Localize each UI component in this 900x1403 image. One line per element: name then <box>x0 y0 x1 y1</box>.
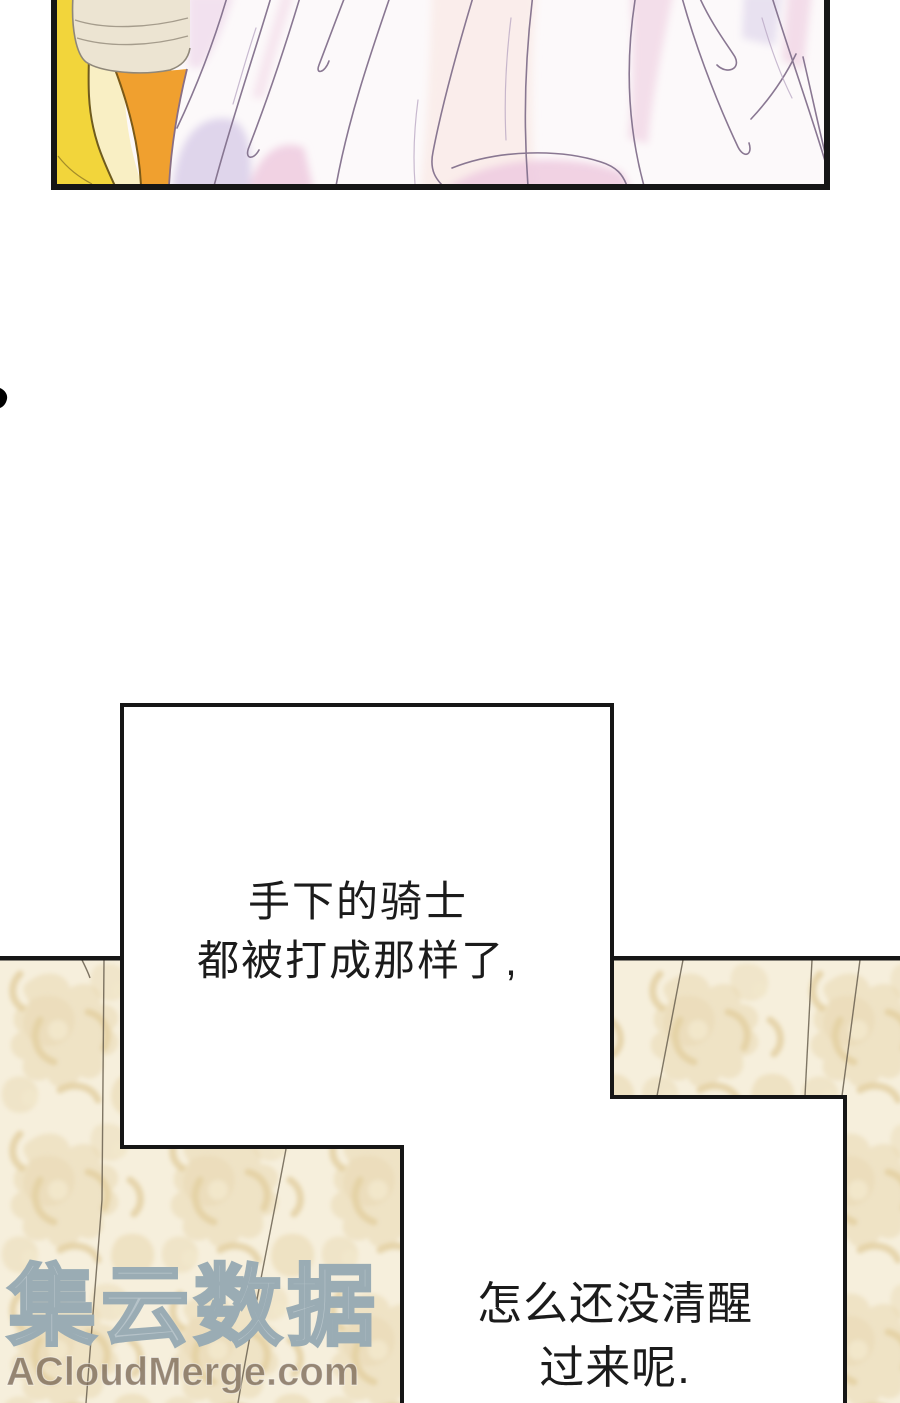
edge-ink-mark <box>0 388 7 408</box>
bubble-b-line-1: 怎么还没清醒 <box>402 1272 828 1336</box>
top-panel-illustration <box>57 0 827 192</box>
speech-bubble-b: 怎么还没清醒 过来呢. <box>402 1272 828 1400</box>
speech-bubble-a: 手下的骑士 都被打成那样了, <box>122 872 594 990</box>
watermark-site-url: ACloudMerge.com <box>6 1351 396 1393</box>
bubble-a-line-2: 都被打成那样了, <box>122 931 594 990</box>
bubble-a-line-1: 手下的骑士 <box>122 872 594 931</box>
cream-pouf <box>73 0 190 73</box>
bubble-b-line-2: 过来呢. <box>402 1336 828 1400</box>
comic-artwork <box>0 0 900 1403</box>
watermark-cjk: 集云数据 <box>8 1262 388 1354</box>
comic-page: 集云数据 ACloudMerge.com 手下的骑士 都被打成那样了, 怎么还没… <box>0 0 900 1403</box>
